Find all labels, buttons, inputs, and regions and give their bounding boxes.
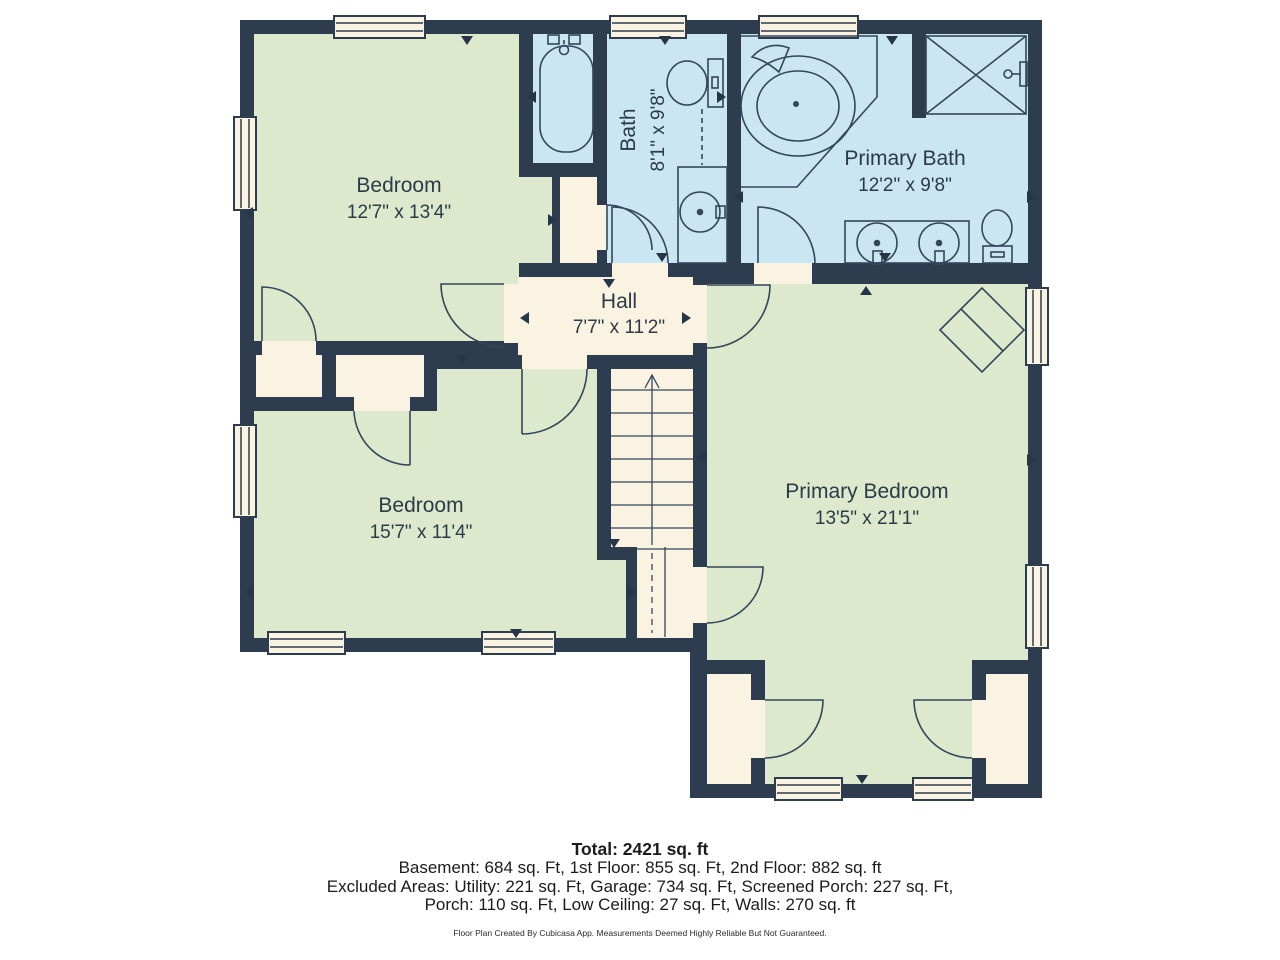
disclaimer: Floor Plan Created By Cubicasa App. Meas… (0, 928, 1280, 938)
closet-right (336, 355, 424, 397)
room-label: Hall (601, 290, 637, 313)
window (1026, 565, 1048, 648)
room-bedroom-tl-nook (519, 177, 552, 263)
room-bath-tub-alcove (533, 34, 593, 163)
room-hall (518, 277, 693, 355)
area-summary: Total: 2421 sq. ft Basement: 684 sq. Ft,… (0, 840, 1280, 938)
bath-closet (560, 177, 597, 263)
room-dimensions: 7'7" x 11'2" (573, 317, 665, 338)
room-dimensions: 13'5" x 21'1" (815, 508, 919, 529)
excluded-areas-1: Excluded Areas: Utility: 221 sq. Ft, Gar… (0, 878, 1280, 897)
window (334, 16, 425, 38)
floor-plan-page: Bedroom 12'7" x 13'4" Bath 8'1" x 9'8" P… (0, 0, 1280, 960)
room-label: Bedroom (378, 494, 463, 517)
floor-areas: Basement: 684 sq. Ft, 1st Floor: 855 sq.… (0, 859, 1280, 878)
room-bedroom-ll-upper (437, 369, 597, 411)
window (610, 16, 686, 38)
room-dimensions: 12'2" x 9'8" (858, 175, 952, 196)
window (775, 778, 842, 800)
room-dimensions: 8'1" x 9'8" (648, 88, 669, 171)
window (234, 425, 256, 517)
window (482, 632, 555, 654)
room-dimensions: 15'7" x 11'4" (370, 522, 473, 543)
room-label: Primary Bedroom (785, 480, 948, 503)
room-dimensions: 12'7" x 13'4" (347, 202, 451, 223)
floor-plan: Bedroom 12'7" x 13'4" Bath 8'1" x 9'8" P… (0, 0, 1280, 830)
window (268, 632, 345, 654)
window (913, 778, 973, 800)
window (234, 117, 256, 210)
primary-closet-left (707, 674, 751, 784)
room-label: Bath (617, 108, 640, 151)
window (759, 16, 858, 38)
excluded-areas-2: Porch: 110 sq. Ft, Low Ceiling: 27 sq. F… (0, 896, 1280, 915)
total-area: Total: 2421 sq. ft (0, 840, 1280, 859)
window (1026, 288, 1048, 365)
room-bedroom-ll-east (597, 560, 626, 638)
shower-wall (912, 34, 926, 118)
primary-closet-right (986, 674, 1028, 784)
closet-left (256, 355, 322, 397)
room-label: Primary Bath (844, 147, 965, 170)
room-label: Bedroom (356, 174, 441, 197)
